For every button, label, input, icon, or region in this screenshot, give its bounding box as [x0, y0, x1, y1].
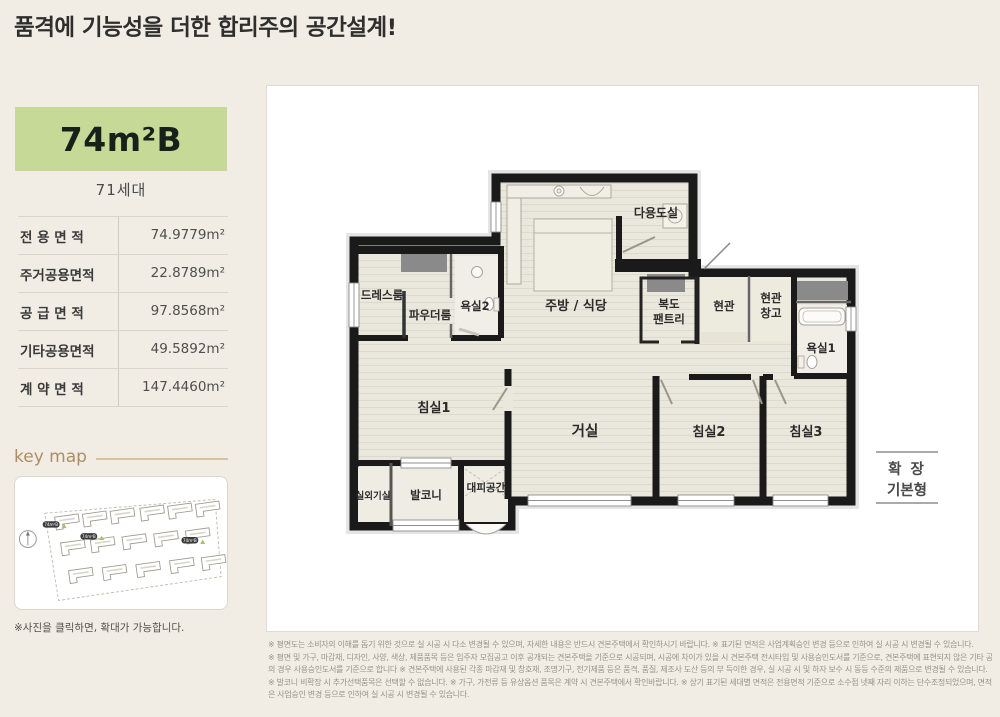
area-row-value: 74.9779m²: [118, 217, 228, 254]
keymap-title: key map: [14, 447, 87, 467]
keymap-rule: [96, 458, 228, 460]
disclaimer-line: 은 사업승인 변경 등으로 인하여 실 시공 시 변경될 수 있습니다.: [268, 689, 992, 702]
room-label: 현관: [760, 291, 782, 305]
room-label: 창고: [760, 306, 782, 320]
room-label: 드레스룸: [361, 288, 404, 302]
svg-text:74m²B: 74m²B: [82, 534, 96, 539]
svg-text:74m²B: 74m²B: [44, 522, 58, 527]
area-row-value: 97.8568m²: [118, 293, 228, 330]
keymap-unit-badge: 74m²B: [80, 533, 104, 540]
room-label: 욕실2: [460, 299, 489, 313]
page-title: 품격에 기능성을 더한 합리주의 공간설계!: [14, 10, 397, 42]
table-row: 기타공용면적 49.5892m²: [18, 331, 228, 369]
site-buildings: [55, 501, 227, 583]
table-row: 계 약 면 적 147.4460m²: [18, 369, 228, 407]
unit-size-badge: 74m²B: [15, 107, 227, 171]
area-row-label: 계 약 면 적: [18, 378, 118, 398]
area-row-label: 공 급 면 적: [18, 302, 118, 322]
area-row-value: 49.5892m²: [118, 331, 228, 368]
svg-text:확 장: 확 장: [888, 460, 926, 478]
svg-text:74m²B: 74m²B: [183, 538, 197, 543]
room-label: 침실2: [693, 424, 726, 440]
keymap-caption: ※사진을 클릭하면, 확대가 가능합니다.: [14, 620, 184, 635]
room-label: 침실1: [418, 400, 451, 416]
area-row-label: 전 용 면 적: [18, 226, 118, 246]
room-label: 주방 / 식당: [545, 298, 607, 314]
room-label: 다용도실: [634, 205, 678, 220]
keymap-header: key map: [14, 447, 228, 467]
svg-text:기본형: 기본형: [887, 482, 927, 499]
disclaimer: ※ 평면도는 소비자의 이해를 돕기 위한 것으로 실 시공 시 다소 변경될 …: [268, 639, 992, 702]
disclaimer-line: ※ 평면도는 소비자의 이해를 돕기 위한 것으로 실 시공 시 다소 변경될 …: [268, 639, 992, 652]
floor-plan-image[interactable]: 드레스룸 파우더룸 욕실2 주방 / 식당 다용도실 복도 팬트리 현관 현관 …: [266, 85, 979, 632]
keymap-image[interactable]: 74m²B 74m²B 74m²B: [14, 476, 228, 610]
room-label: 현관: [713, 299, 735, 313]
variant-note: 확 장 기본형: [876, 452, 938, 503]
room-label: 파우더룸: [409, 308, 452, 322]
room-label: 복도: [658, 297, 680, 311]
area-row-value: 22.8789m²: [118, 255, 228, 292]
keymap-svg: 74m²B 74m²B 74m²B: [15, 477, 227, 609]
area-table: 전 용 면 적 74.9779m² 주거공용면적 22.8789m² 공 급 면…: [18, 216, 228, 407]
disclaimer-line: 의 경우 사용승인도서를 기준으로 합니다 ※ 견본주택에 사용된 각종 마감재…: [268, 664, 992, 677]
room-label: 침실3: [790, 424, 823, 440]
compass-icon: [19, 531, 36, 548]
households-count: 71세대: [15, 179, 227, 200]
area-row-label: 주거공용면적: [18, 264, 118, 284]
disclaimer-line: ※ 평면 및 가구, 마감재, 디자인, 사양, 색상, 제품품목 등은 입주자…: [268, 652, 992, 665]
table-row: 주거공용면적 22.8789m²: [18, 255, 228, 293]
floor-plan-svg: 드레스룸 파우더룸 욕실2 주방 / 식당 다용도실 복도 팬트리 현관 현관 …: [267, 86, 978, 631]
table-row: 전 용 면 적 74.9779m²: [18, 217, 228, 255]
room-label: 대피공간: [467, 481, 506, 494]
room-label: 실외기실: [356, 490, 391, 502]
room-label: 팬트리: [653, 312, 685, 326]
area-row-label: 기타공용면적: [18, 340, 118, 360]
room-label: 발코니: [410, 488, 442, 502]
keymap-unit-badge: 74m²B: [181, 537, 205, 544]
disclaimer-line: ※ 발코니 비확장 시 추가선택품목은 선택할 수 없습니다. ※ 가구, 가전…: [268, 677, 992, 690]
room-label: 욕실1: [806, 341, 835, 355]
area-row-value: 147.4460m²: [118, 369, 228, 406]
table-row: 공 급 면 적 97.8568m²: [18, 293, 228, 331]
room-label: 거실: [572, 423, 599, 440]
